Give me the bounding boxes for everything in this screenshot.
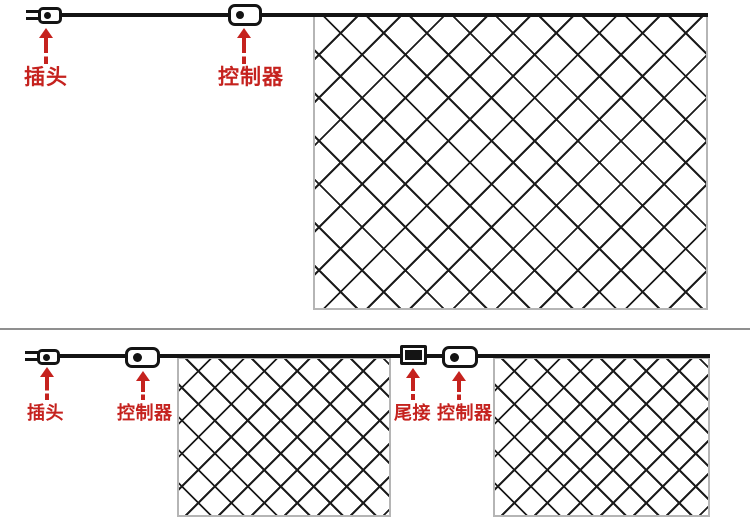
tail-connector-label: 尾接 — [394, 404, 431, 424]
tail-connector-fill — [405, 350, 422, 360]
arrow-up-icon — [38, 28, 54, 64]
net-lights-diagram-page: { "diagram": { "description": "LED net l… — [0, 0, 750, 530]
arrow-up-icon — [451, 371, 467, 400]
controller-icon — [442, 346, 478, 368]
net-mesh-small-right — [493, 357, 710, 517]
plug-dot — [43, 354, 50, 361]
arrow-up-icon — [39, 367, 55, 400]
controller-icon — [228, 4, 262, 26]
arrow-up-icon — [236, 28, 252, 64]
controller-icon — [125, 347, 160, 368]
controller-label: 控制器 — [117, 404, 173, 424]
section-divider — [0, 328, 750, 330]
tail-connector-icon — [400, 345, 427, 365]
controller-dot — [236, 11, 244, 19]
net-mesh-small-left — [177, 357, 391, 517]
power-wire — [56, 13, 708, 17]
controller-2-label: 控制器 — [437, 404, 493, 424]
net-mesh-large — [313, 15, 708, 310]
arrow-up-icon — [405, 368, 421, 400]
plug-label: 插头 — [24, 66, 68, 89]
controller-dot — [450, 353, 459, 362]
plug-icon — [37, 349, 60, 365]
arrow-up-icon — [135, 371, 151, 400]
controller-label: 控制器 — [218, 66, 284, 89]
plug-icon — [38, 7, 62, 24]
plug-dot — [44, 12, 51, 19]
controller-dot — [133, 353, 142, 362]
plug-label: 插头 — [27, 404, 64, 424]
